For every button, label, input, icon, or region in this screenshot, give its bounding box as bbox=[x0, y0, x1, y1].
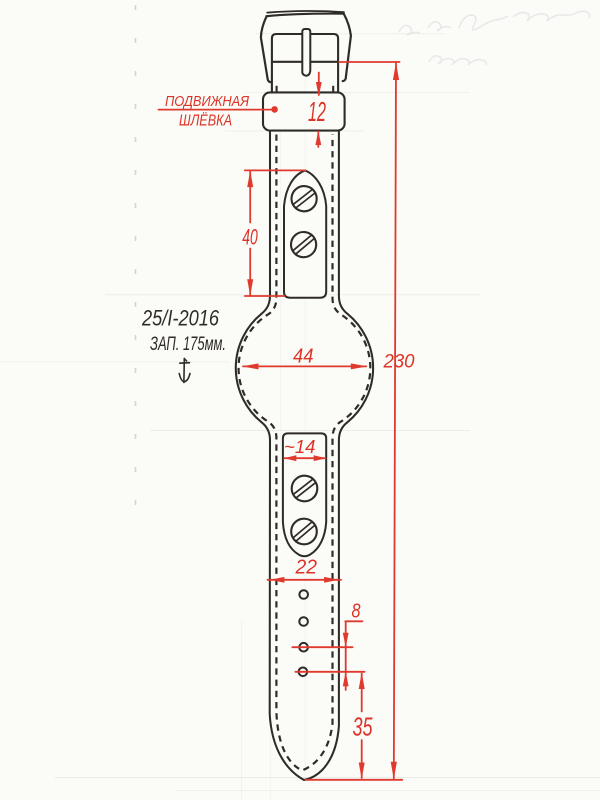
svg-text:ЗАП. 175мм.: ЗАП. 175мм. bbox=[150, 334, 226, 355]
svg-text:40: 40 bbox=[242, 225, 258, 250]
svg-text:230: 230 bbox=[383, 352, 415, 373]
svg-text:12: 12 bbox=[308, 96, 326, 127]
svg-text:~14: ~14 bbox=[284, 437, 316, 457]
svg-text:25/I-2016: 25/I-2016 bbox=[141, 306, 219, 331]
svg-text:35: 35 bbox=[353, 712, 373, 742]
svg-text:8: 8 bbox=[352, 600, 361, 623]
svg-text:22: 22 bbox=[295, 556, 318, 579]
svg-text:ПОДВИЖНАЯ: ПОДВИЖНАЯ bbox=[165, 93, 250, 110]
svg-text:ШЛЁВКА: ШЛЁВКА bbox=[179, 113, 232, 130]
svg-text:44: 44 bbox=[293, 345, 314, 368]
